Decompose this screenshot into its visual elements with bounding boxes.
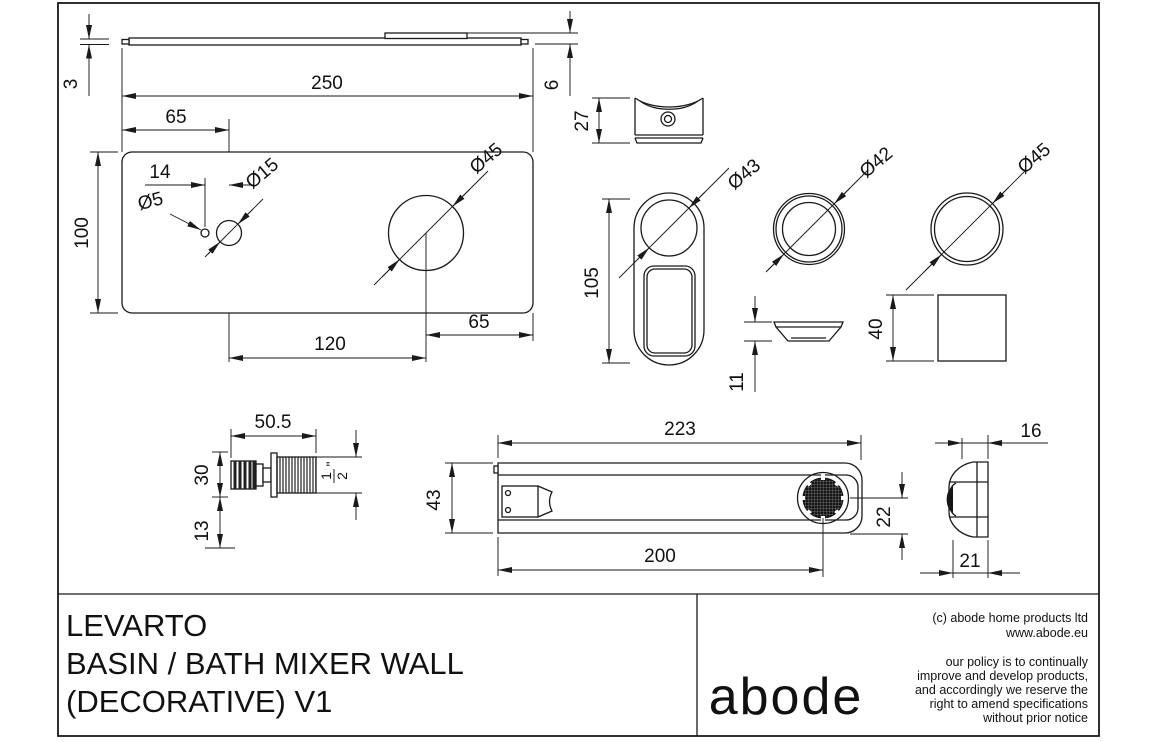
dim-text-trim-depth: 27 <box>572 110 593 131</box>
thread-num: 1 <box>318 472 334 480</box>
policy-line-5: without prior notice <box>982 711 1088 725</box>
dim-text-plate-height: 100 <box>72 217 93 249</box>
dim-text-trim-height: 105 <box>582 267 603 299</box>
product-name: LEVARTO <box>66 608 207 643</box>
thread-unit: " <box>323 461 339 466</box>
thread-den: 2 <box>334 472 350 480</box>
dim-text-square-size: 40 <box>866 318 887 339</box>
dim-text-hole-offset-left: 65 <box>165 107 186 128</box>
view-spout-bottom <box>494 463 862 533</box>
dim-text-aerator-offset: 22 <box>874 506 895 527</box>
policy-line-4: right to amend specifications <box>930 697 1088 711</box>
dim-text-tail-length: 50.5 <box>255 412 292 433</box>
dim-text-tail-dia: 30 <box>192 464 213 485</box>
policy-line-1: our policy is to continually <box>946 655 1089 669</box>
dim-text-spout-length: 223 <box>664 419 696 440</box>
dim-text-screw-hole-pitch: 14 <box>149 162 171 183</box>
product-description: BASIN / BATH MIXER WALL <box>66 646 464 681</box>
dim-text-hole-offset-right: 65 <box>468 312 489 333</box>
dim-text-tail-offset: 13 <box>192 520 213 541</box>
dim-text-plate-thickness: 3 <box>61 79 82 90</box>
technical-drawing: 3 6 250 65 100 14 <box>0 0 1156 742</box>
policy-line-3: and accordingly we reserve the <box>915 683 1088 697</box>
dim-text-spout-reach: 200 <box>644 546 676 567</box>
dim-text-spout-width: 43 <box>424 489 445 510</box>
website-url: www.abode.eu <box>1005 626 1088 640</box>
view-cap-side <box>938 295 1006 361</box>
dim-text-dish-depth: 11 <box>727 372 748 392</box>
dim-text-end-top: 16 <box>1020 421 1041 442</box>
copyright-line: (c) abode home products ltd <box>932 611 1088 625</box>
dim-text-end-bottom: 21 <box>959 551 980 572</box>
product-variant: (DECORATIVE) V1 <box>66 684 332 719</box>
dim-text-hole-pitch: 120 <box>314 334 346 355</box>
dim-text-total-depth: 6 <box>542 80 563 91</box>
view-handle-trim-front <box>634 193 704 365</box>
brand-logo: abode <box>709 668 864 726</box>
dim-text-plate-width: 250 <box>311 73 343 94</box>
policy-line-2: improve and develop products, <box>917 669 1088 683</box>
